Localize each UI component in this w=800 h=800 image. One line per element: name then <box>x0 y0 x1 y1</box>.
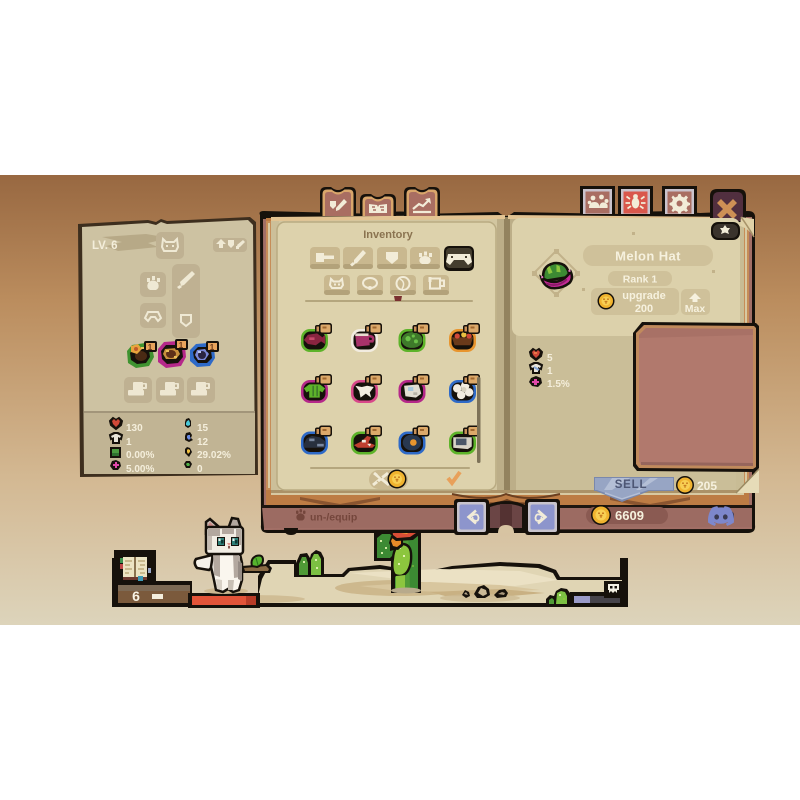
svg-text:Rank 1: Rank 1 <box>623 274 658 286</box>
svg-text:Melon Hat: Melon Hat <box>615 249 681 264</box>
svg-text:1: 1 <box>148 343 153 352</box>
svg-text:6: 6 <box>132 588 140 604</box>
svg-text:205: 205 <box>697 479 717 493</box>
svg-text:5.00%: 5.00% <box>126 464 154 475</box>
svg-text:5: 5 <box>547 353 553 364</box>
svg-text:1: 1 <box>547 366 553 377</box>
svg-text:6609: 6609 <box>615 508 644 523</box>
svg-text:1.5%: 1.5% <box>547 379 570 390</box>
svg-text:Max: Max <box>685 303 706 315</box>
svg-text:1: 1 <box>179 341 184 350</box>
svg-text:15: 15 <box>197 423 209 434</box>
svg-text:1: 1 <box>126 437 132 448</box>
svg-text:1: 1 <box>210 343 215 352</box>
svg-text:SELL: SELL <box>615 479 648 491</box>
svg-text:un-/equip: un-/equip <box>310 512 357 524</box>
svg-text:200: 200 <box>635 303 653 315</box>
svg-text:0: 0 <box>197 464 203 475</box>
svg-text:LV. 6: LV. 6 <box>92 240 118 252</box>
svg-text:12: 12 <box>197 437 209 448</box>
svg-text:0.00%: 0.00% <box>126 450 154 461</box>
svg-text:Inventory: Inventory <box>363 229 413 241</box>
svg-text:130: 130 <box>126 423 143 434</box>
svg-text:upgrade: upgrade <box>622 290 665 302</box>
svg-text:29.02%: 29.02% <box>197 450 231 461</box>
